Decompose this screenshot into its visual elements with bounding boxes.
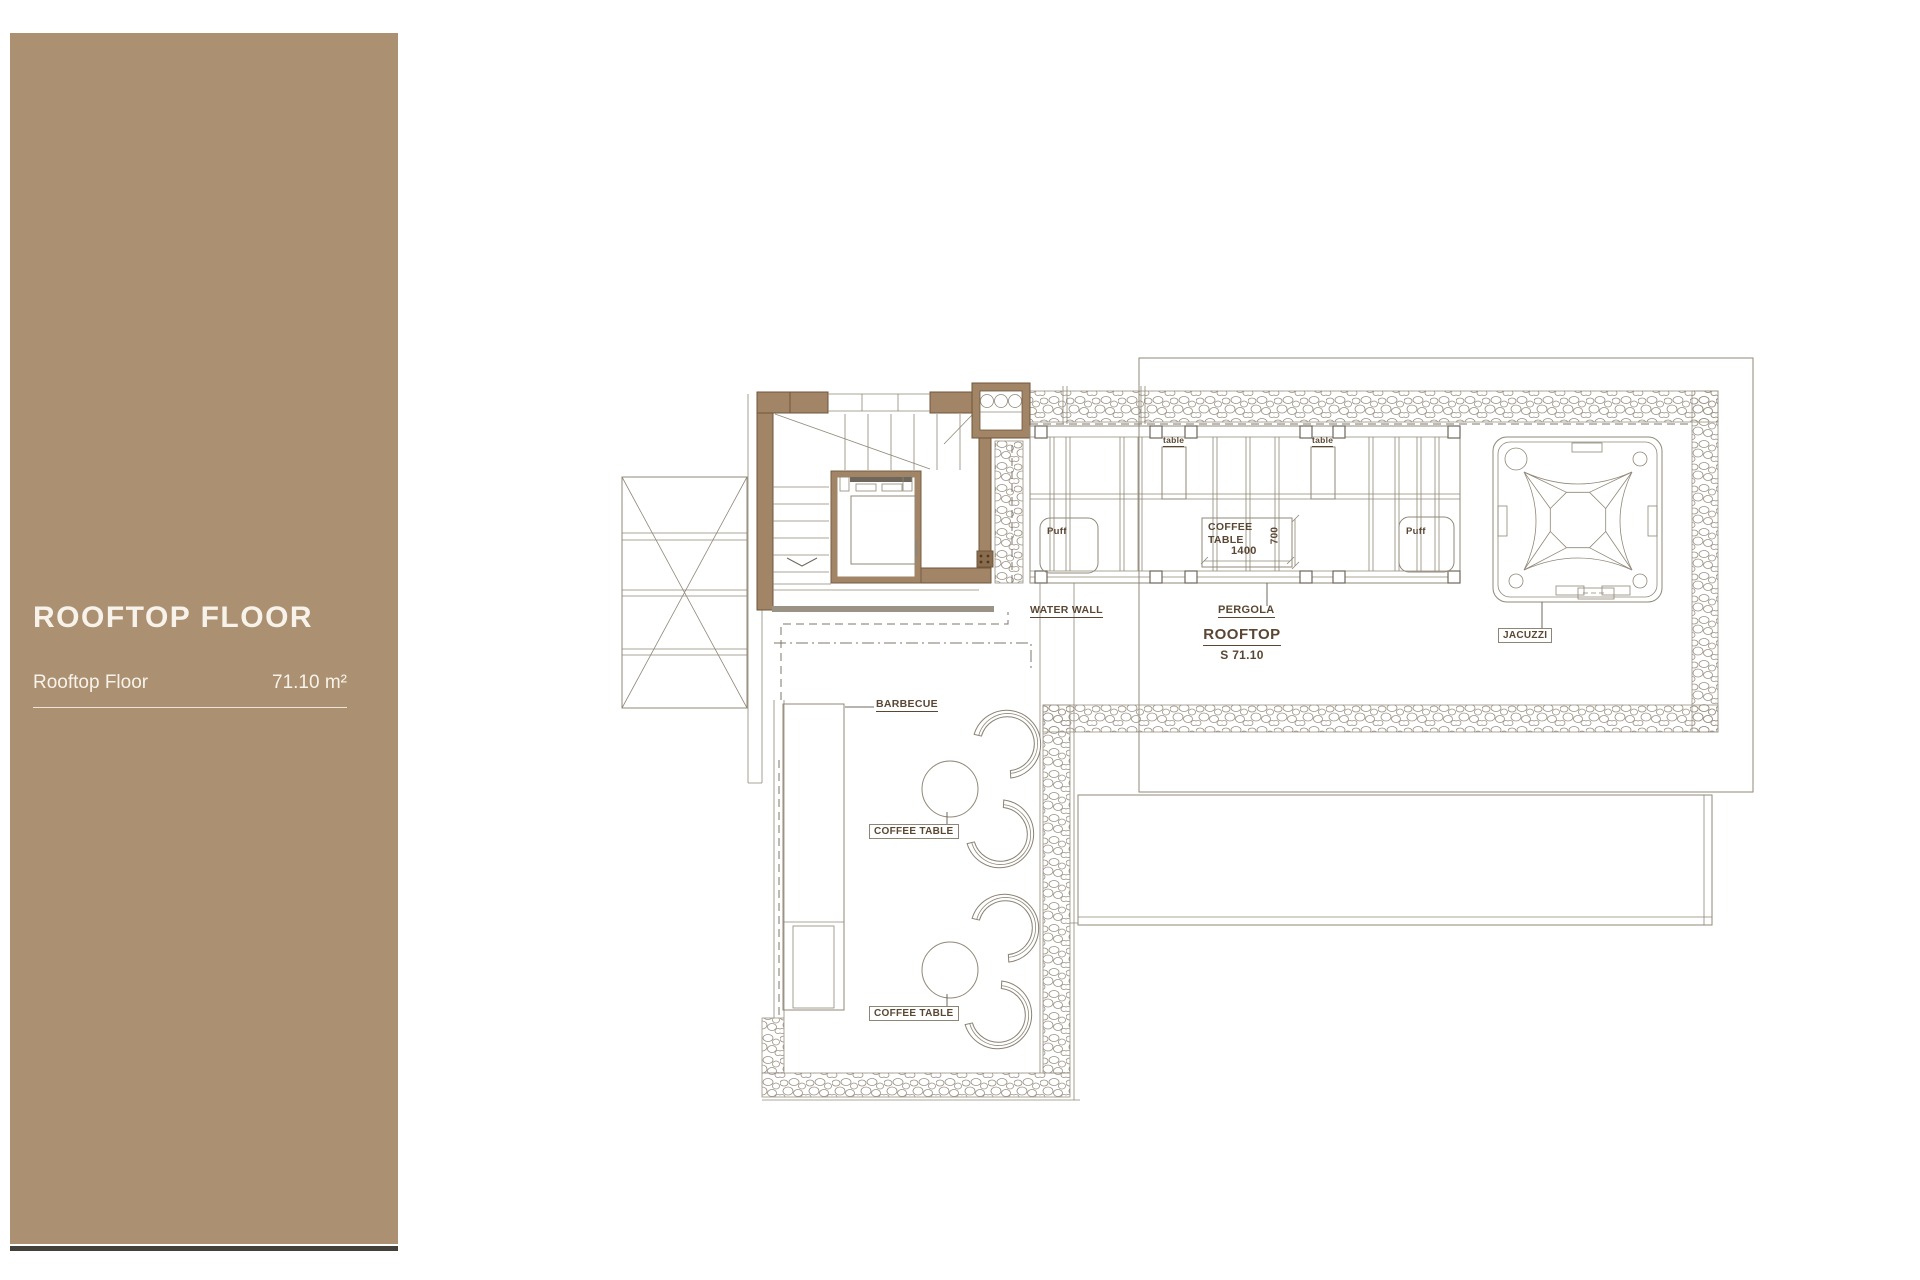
- coffee-table-label-1: COFFEE TABLE: [869, 824, 959, 839]
- water-wall-label: WATER WALL: [1030, 604, 1103, 618]
- pergola-label: PERGOLA: [1218, 604, 1275, 618]
- skylight: [622, 477, 747, 708]
- coffee-table-label-2: COFFEE TABLE: [869, 1006, 959, 1021]
- water-wall-outline: [774, 612, 1031, 700]
- stair-threshold: [772, 606, 994, 612]
- barbecue-counter: [783, 704, 844, 1010]
- lounge-chair: [971, 696, 1055, 782]
- pergola-posts: [1035, 426, 1460, 583]
- lounge-chair: [964, 796, 1048, 882]
- puff-label-1: Puff: [1047, 526, 1067, 537]
- stair-west-wall: [757, 392, 773, 610]
- corner-planter: [972, 383, 1030, 438]
- elevator-car: [851, 496, 915, 564]
- jacuzzi: [1493, 437, 1662, 628]
- gravel-border: [1030, 386, 1718, 732]
- stair-column: [977, 551, 993, 567]
- room-name: ROOFTOP: [1203, 626, 1281, 646]
- room-area: S 71.10: [1203, 648, 1281, 662]
- barbecue-label: BARBECUE: [876, 698, 938, 712]
- stair-window: [828, 394, 930, 411]
- lower-terrace: [762, 583, 1080, 1100]
- puff-label-2: Puff: [1406, 526, 1426, 537]
- coffee-table-round-2: [922, 942, 978, 998]
- floor-plan: WATER WALL PERGOLA ROOFTOP S 71.10 JACUZ…: [0, 0, 1920, 1280]
- elevator: [831, 471, 921, 583]
- seating-group-2: [922, 880, 1053, 1062]
- jacuzzi-label: JACUZZI: [1498, 628, 1552, 643]
- dimension-depth: 700: [1269, 527, 1280, 545]
- room-label-block: ROOFTOP S 71.10: [1203, 626, 1281, 662]
- pergola: [1030, 426, 1460, 606]
- dimension-width: 1400: [1231, 545, 1257, 557]
- side-table-1: [1162, 447, 1186, 499]
- floor-plan-drawing: [0, 0, 1920, 1280]
- stair-direction-arrow: [787, 558, 817, 566]
- seating-group-1: [922, 696, 1055, 881]
- coffee-table-round-1: [922, 761, 978, 817]
- lounge-chair: [962, 977, 1046, 1063]
- pergola-coffee-table-label: COFFEE TABLE: [1208, 521, 1252, 547]
- table-label-2: table: [1312, 435, 1333, 447]
- table-label-1: table: [1163, 435, 1184, 447]
- side-table-2: [1311, 447, 1335, 499]
